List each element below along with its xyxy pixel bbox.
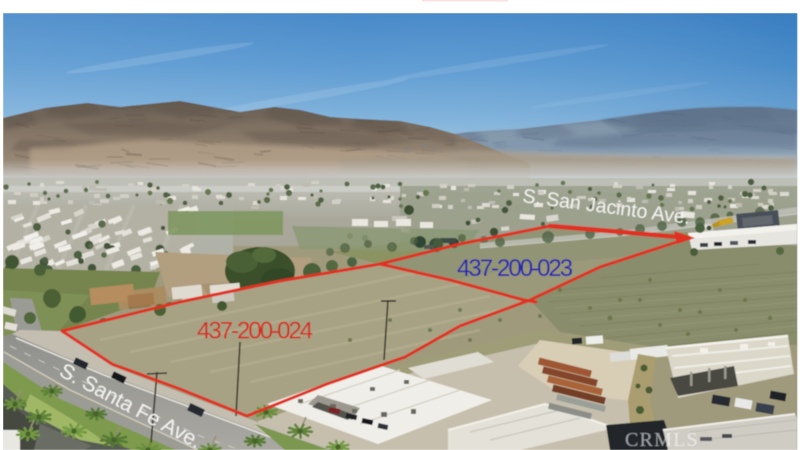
svg-text:CRMLS: CRMLS xyxy=(625,429,699,450)
svg-text:437-200-023: 437-200-023 xyxy=(457,255,573,282)
svg-text:437-200-024: 437-200-024 xyxy=(197,318,313,345)
